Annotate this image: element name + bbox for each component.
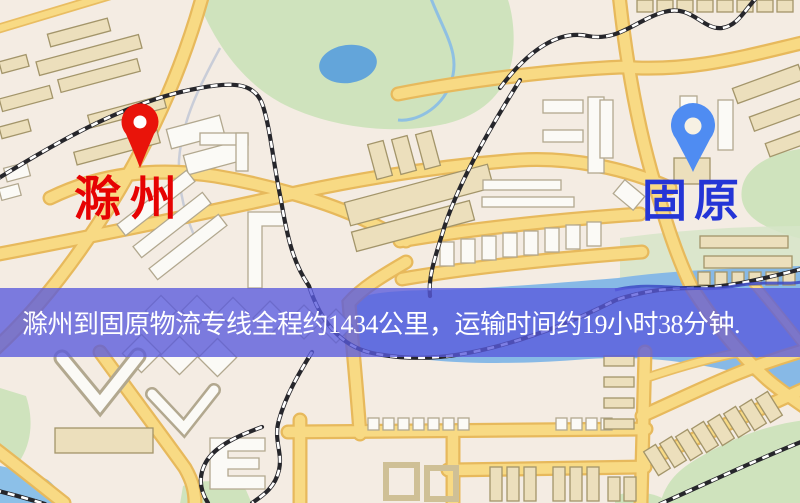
- origin-pin-icon[interactable]: [122, 103, 159, 168]
- route-info-banner: 滁州到固原物流专线全程约1434公里，运输时间约19小时38分钟.: [0, 288, 800, 357]
- origin-city-label: 滁州: [74, 177, 186, 224]
- logistics-route-map: 滁州 固原 滁州到固原物流专线全程约1434公里，运输时间约19小时38分钟.: [0, 0, 800, 503]
- destination-city-label: 固原: [642, 179, 746, 224]
- origin-pin-hole: [134, 116, 147, 129]
- map-background: [0, 0, 800, 503]
- route-info-text: 滁州到固原物流专线全程约1434公里，运输时间约19小时38分钟.: [22, 304, 740, 341]
- destination-pin-hole: [685, 118, 702, 135]
